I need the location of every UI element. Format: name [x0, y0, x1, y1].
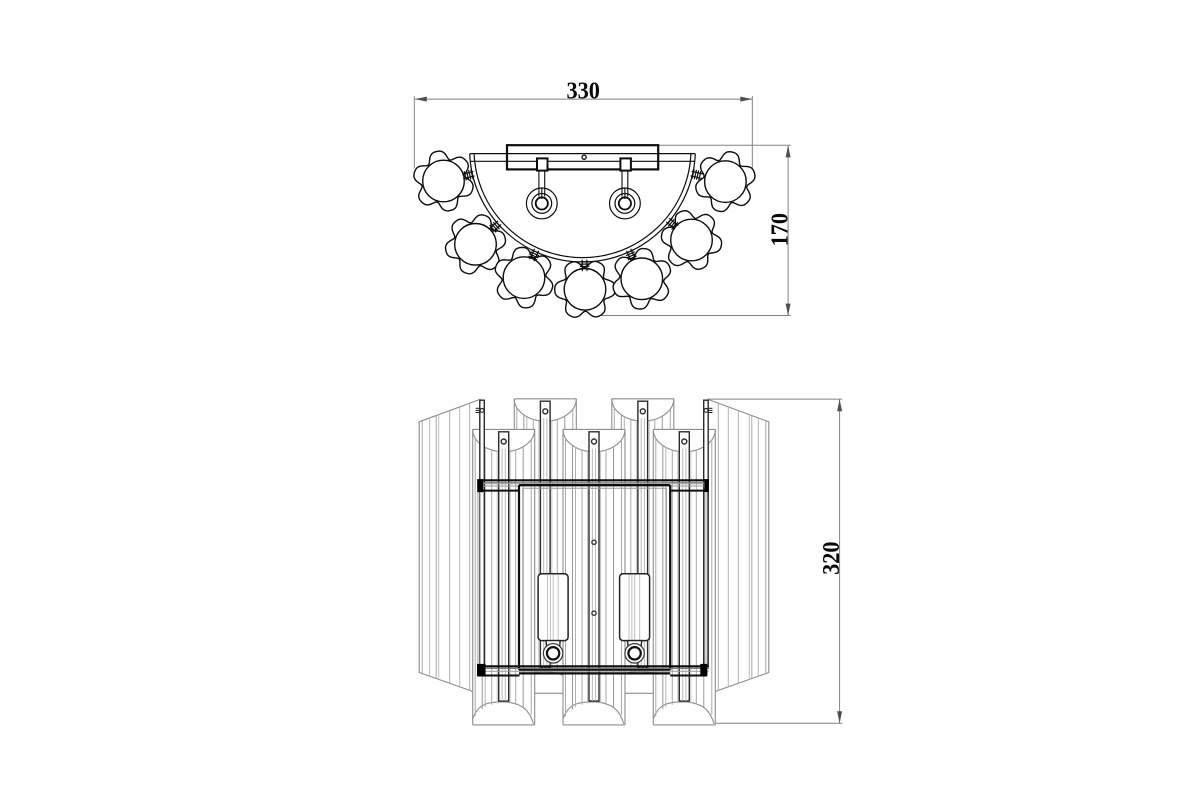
svg-text:320: 320 [818, 541, 845, 574]
svg-text:330: 330 [566, 78, 599, 105]
svg-text:170: 170 [767, 213, 794, 246]
